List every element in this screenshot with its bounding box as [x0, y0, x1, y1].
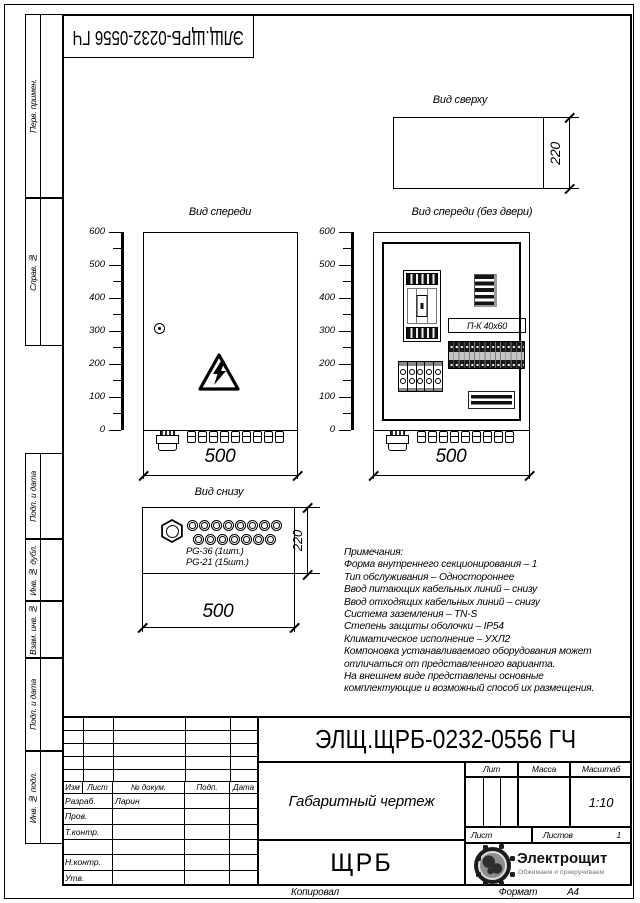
bottom-view-title: Вид снизу — [164, 486, 274, 498]
margin-box-perv-primen: Перв. примен. — [25, 14, 63, 198]
din-busbar — [468, 391, 515, 409]
titleblock-header-row: ИзмЛист№ докум.Подп.Дата — [62, 781, 258, 794]
high-voltage-warning-icon — [197, 352, 241, 393]
bottom-view-width-dim-line — [142, 627, 295, 628]
fuse-terminal-block — [398, 361, 442, 392]
margin-label: Перв. примен. — [28, 79, 38, 133]
cable-glands-small — [187, 431, 286, 443]
titleblock-designation-cell: ЭЛЩ.ЩРБ-0232-0556 ГЧ — [258, 716, 632, 762]
top-view-outline — [393, 117, 544, 189]
gland-holes-row-top — [187, 520, 283, 531]
margin-label: Инв. № подл. — [28, 772, 38, 823]
mass-value-cell — [518, 777, 570, 827]
titleblock-designation: ЭЛЩ.ЩРБ-0232-0556 ГЧ — [314, 724, 575, 755]
notes-lines: Форма внутреннего секционирования – 1Тип… — [344, 559, 636, 695]
company-name: Электрощит — [517, 850, 607, 867]
circuit-breaker — [403, 270, 441, 342]
margin-label: Инв. № дубл. — [28, 545, 38, 596]
lit-value-cell — [465, 777, 518, 827]
format-value: А4 — [558, 887, 588, 898]
margin-box-sprav-no: Справ. № — [25, 198, 63, 346]
margin-box-inv-podl: Инв. № подл. — [25, 751, 63, 844]
margin-box-podp-data-2: Подп. и дата — [25, 658, 63, 751]
rotated-designation-text: ЭЛЩ.ЩРБ-0232-0556 ГЧ — [72, 25, 243, 48]
top-view-title: Вид сверху — [385, 94, 535, 106]
margin-box-vzam-inv: Взам. инв. № — [25, 601, 63, 658]
margin-box-podp-data-1: Подп. и дата — [25, 453, 63, 539]
margin-label: Подп. и дата — [28, 679, 38, 730]
front-view-scale-ruler: 6005004003002001000 — [80, 232, 124, 430]
cable-duct-label-box: П-К 40x60 — [448, 318, 526, 333]
titleblock-product-cell: ЩРБ — [258, 840, 465, 886]
sheets-label: Листов — [543, 828, 573, 842]
rotated-designation-box: ЭЛЩ.ЩРБ-0232-0556 ГЧ — [62, 14, 254, 58]
margin-box-inv-dubl: Инв. № дубл. — [25, 539, 63, 601]
front-view-title: Вид спереди — [160, 206, 280, 218]
front-open-view-title: Вид спереди (без двери) — [352, 206, 592, 218]
notes-title: Примечания: — [344, 547, 636, 559]
titleblock-signature-rows: Разраб.ЛаринПров.Т.контр.Н.контр.Утв. — [62, 794, 258, 886]
front-view-dim-line — [143, 475, 298, 476]
terminal-comb-block — [474, 274, 497, 307]
front-open-scale-ruler: 6005004003002001000 — [310, 232, 354, 430]
company-logo-cell: Электрощит Обжимаем и прикручиваем — [465, 843, 632, 886]
doc-type: Габаритный чертеж — [289, 793, 435, 810]
revision-table — [62, 718, 258, 781]
notes-block: Примечания: Форма внутреннего секциониро… — [344, 547, 636, 696]
modular-breaker-row — [448, 341, 525, 369]
bottom-view-depth-dim-line — [307, 507, 308, 574]
drawing-sheet: ЭЛЩ.ЩРБ-0232-0556 ГЧ Перв. примен. Справ… — [0, 0, 640, 903]
front-view-cabinet — [143, 232, 298, 431]
company-tagline: Обжимаем и прикручиваем — [518, 869, 604, 876]
cable-glands-small — [417, 431, 516, 443]
bottom-view-depth-dim: 220 — [290, 522, 305, 560]
company-logo-icon — [474, 847, 511, 884]
cable-duct-label: П-К 40x60 — [467, 321, 507, 331]
gland-large-label: PG-36 (1шт.) — [186, 546, 244, 557]
margin-label: Подп. и дата — [28, 471, 38, 522]
bottom-view-width-dim: 500 — [168, 601, 268, 623]
top-view-dim-line — [569, 117, 570, 189]
scale-value-cell: 1:10 — [570, 777, 632, 827]
margin-label: Взам. инв. № — [28, 604, 38, 655]
sheet-label: Лист — [471, 830, 492, 840]
margin-label: Справ. № — [28, 253, 38, 291]
gland-holes-row-bottom — [193, 534, 277, 545]
front-open-dim-line — [373, 475, 530, 476]
mass-header: Масса — [518, 762, 570, 777]
lit-header: Лит — [465, 762, 518, 777]
gland-small-label: PG-21 (15шт.) — [186, 557, 249, 568]
sheets-cell: Листов 1 — [532, 827, 632, 843]
copied-label: Копировал — [255, 887, 375, 898]
format-label: Формат — [488, 887, 548, 898]
scale-value: 1:10 — [589, 795, 614, 810]
sheets-value: 1 — [616, 828, 621, 842]
front-open-width-dim: 500 — [401, 446, 501, 468]
product-name: ЩРБ — [330, 849, 393, 878]
front-view-width-dim: 500 — [170, 446, 270, 468]
door-lock — [154, 323, 165, 334]
sheet-cell: Лист — [465, 827, 532, 843]
titleblock-docname-cell: Габаритный чертеж — [258, 762, 465, 840]
top-view-depth-dim: 220 — [547, 129, 563, 177]
scale-header: Масштаб — [570, 762, 632, 777]
